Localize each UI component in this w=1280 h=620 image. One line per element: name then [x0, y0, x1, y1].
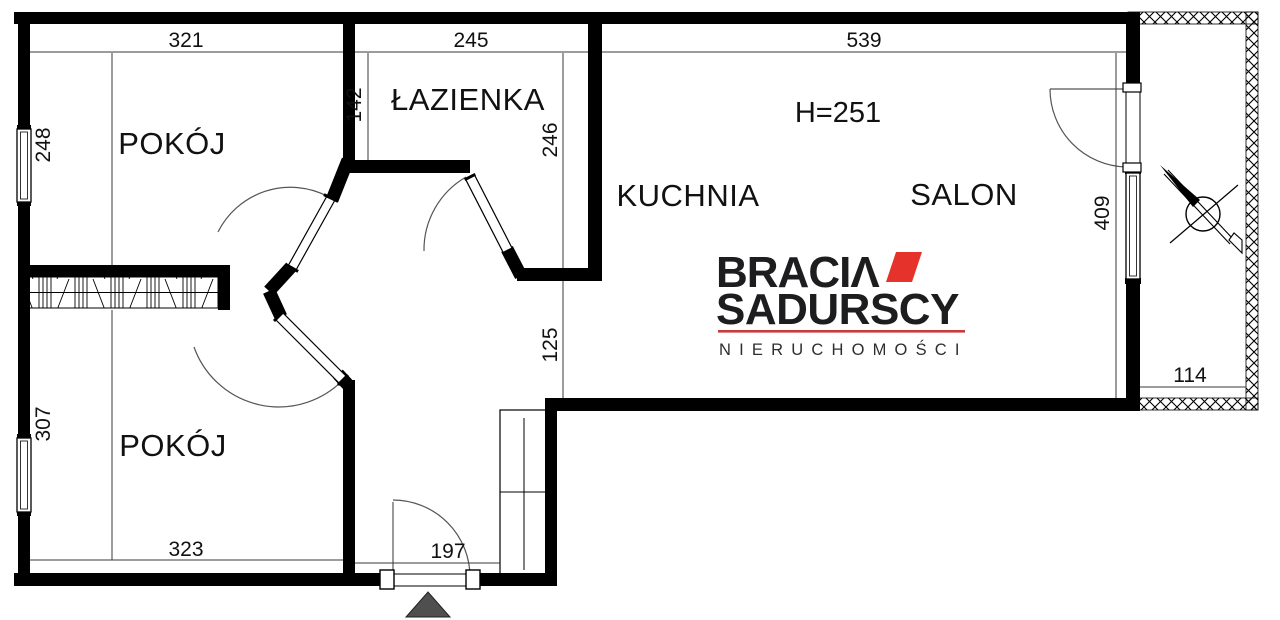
dim-bathroom-width: 245 — [453, 29, 488, 52]
hall-closet — [500, 410, 548, 583]
door-balcony — [1050, 83, 1141, 172]
floor-plan-page: 321 245 539 248 142 246 125 409 114 307 … — [0, 0, 1280, 620]
wall-hall-zigzag-2 — [269, 291, 281, 317]
wall-top — [14, 12, 1128, 24]
dim-hall-width: 197 — [430, 540, 465, 563]
room-label-top: POKÓJ — [118, 126, 226, 161]
north-arrow-tip — [1160, 165, 1200, 207]
room-label-kitchen: KUCHNIA — [616, 178, 759, 213]
wall-bottom-left — [14, 573, 382, 586]
dim-top-room-height: 248 — [32, 127, 55, 162]
wall-hall-zigzag-1 — [269, 267, 291, 291]
dim-bathroom-left: 142 — [343, 87, 366, 122]
balcony-hatch-bottom — [1128, 398, 1258, 410]
window-room-bottom — [17, 434, 31, 516]
dim-top-room-width: 321 — [168, 29, 203, 52]
wall-wardrobe-stub — [218, 265, 230, 310]
built-in-wardrobe — [25, 277, 218, 308]
doors — [194, 83, 1141, 589]
wall-salon-right-bottom — [1126, 282, 1140, 410]
floor-plan-svg: 321 245 539 248 142 246 125 409 114 307 … — [0, 0, 1280, 620]
dim-passage: 125 — [539, 327, 562, 362]
entrance-marker — [406, 592, 450, 617]
brand-line2: SADURSCY — [716, 285, 959, 334]
wall-left-mid — [18, 205, 30, 270]
dim-bottom-room-width: 323 — [168, 538, 203, 561]
balcony — [1128, 12, 1258, 410]
brand-tagline: NIERUCHOMOŚCI — [719, 340, 968, 359]
brand-red-parallelogram — [886, 252, 922, 282]
ceiling-height-note: H=251 — [795, 97, 881, 129]
room-label-living: SALON — [910, 177, 1018, 212]
dim-living-width: 539 — [846, 29, 881, 52]
wall-bath-bottom — [343, 160, 470, 173]
door-room-top — [218, 187, 338, 271]
dim-living-right: 409 — [1091, 195, 1114, 230]
wall-bath-right — [588, 24, 602, 281]
balcony-hatch-top — [1128, 12, 1258, 24]
room-label-bottom: POKÓJ — [119, 428, 227, 463]
north-arrow-crossline — [1170, 185, 1238, 243]
wall-kitchen-bottom — [545, 398, 1140, 411]
door-bathroom — [424, 174, 513, 253]
room-label-bathroom: ŁAZIENKA — [391, 82, 545, 117]
wall-room-divider — [18, 265, 230, 277]
wall-room-bottom-right — [343, 380, 355, 573]
brand-logo: BRACIΛ SADURSCY NIERUCHOMOŚCI — [716, 248, 968, 359]
dim-bottom-room-height: 307 — [32, 406, 55, 441]
dim-balcony-width: 114 — [1173, 364, 1207, 387]
window-room-top — [17, 125, 31, 206]
window-salon — [1125, 168, 1141, 284]
balcony-hatch-right — [1246, 12, 1258, 410]
brand-underline — [718, 330, 965, 333]
wall-left-upper — [18, 12, 30, 127]
door-room-bottom — [194, 311, 348, 407]
dim-bathroom-right: 246 — [539, 122, 562, 157]
north-arrow-icon — [1160, 165, 1242, 253]
